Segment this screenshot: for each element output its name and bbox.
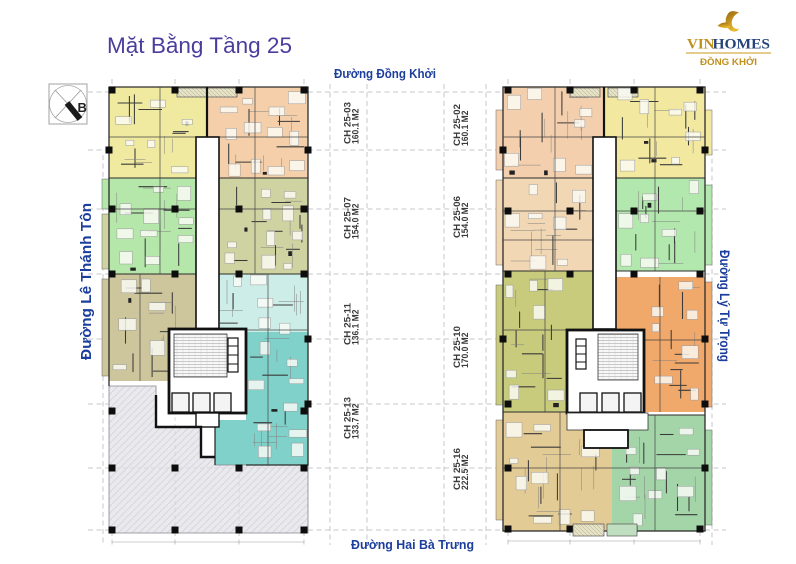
svg-text:154.0 M2: 154.0 M2 — [351, 204, 362, 240]
svg-text:Đường Hai Bà Trưng: Đường Hai Bà Trưng — [351, 537, 474, 552]
svg-text:222.5 M2: 222.5 M2 — [460, 455, 471, 491]
svg-text:170.0 M2: 170.0 M2 — [460, 333, 471, 369]
svg-text:Đường Đồng Khởi: Đường Đồng Khởi — [334, 66, 436, 81]
svg-text:Mặt Bằng Tầng 25: Mặt Bằng Tầng 25 — [107, 33, 292, 58]
svg-text:HOMES: HOMES — [713, 37, 771, 53]
svg-text:154.0 M2: 154.0 M2 — [460, 203, 471, 239]
svg-text:Đường Lý Tự Trọng: Đường Lý Tự Trọng — [717, 250, 732, 362]
svg-text:133.7 M2: 133.7 M2 — [351, 404, 362, 440]
svg-text:160.1 M2: 160.1 M2 — [351, 109, 362, 145]
svg-text:ĐỒNG KHỞI: ĐỒNG KHỞI — [700, 56, 757, 67]
svg-text:136.1 M2: 136.1 M2 — [351, 310, 362, 346]
svg-text:Đường Lê Thánh Tôn: Đường Lê Thánh Tôn — [78, 203, 95, 360]
svg-text:B: B — [78, 100, 87, 115]
svg-text:VIN: VIN — [687, 37, 715, 53]
svg-text:160.1 M2: 160.1 M2 — [460, 111, 471, 147]
